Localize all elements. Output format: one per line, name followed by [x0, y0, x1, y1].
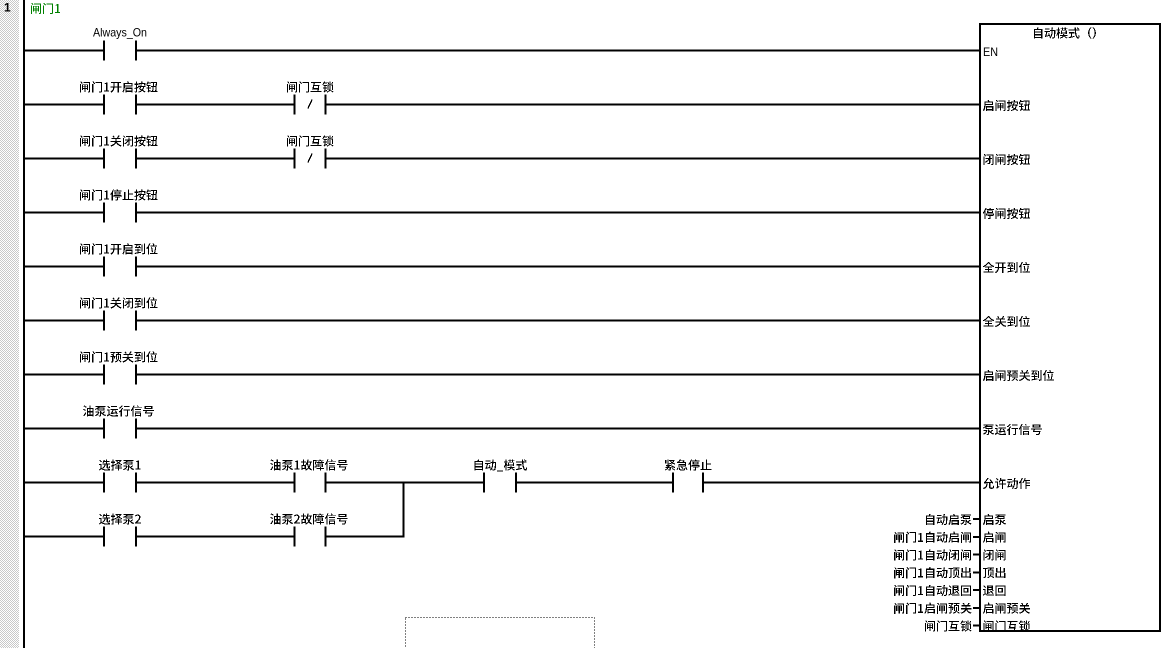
svg-text:1: 1	[4, 1, 11, 15]
svg-text:EN: EN	[983, 45, 998, 59]
svg-text:Always_On: Always_On	[93, 26, 147, 40]
